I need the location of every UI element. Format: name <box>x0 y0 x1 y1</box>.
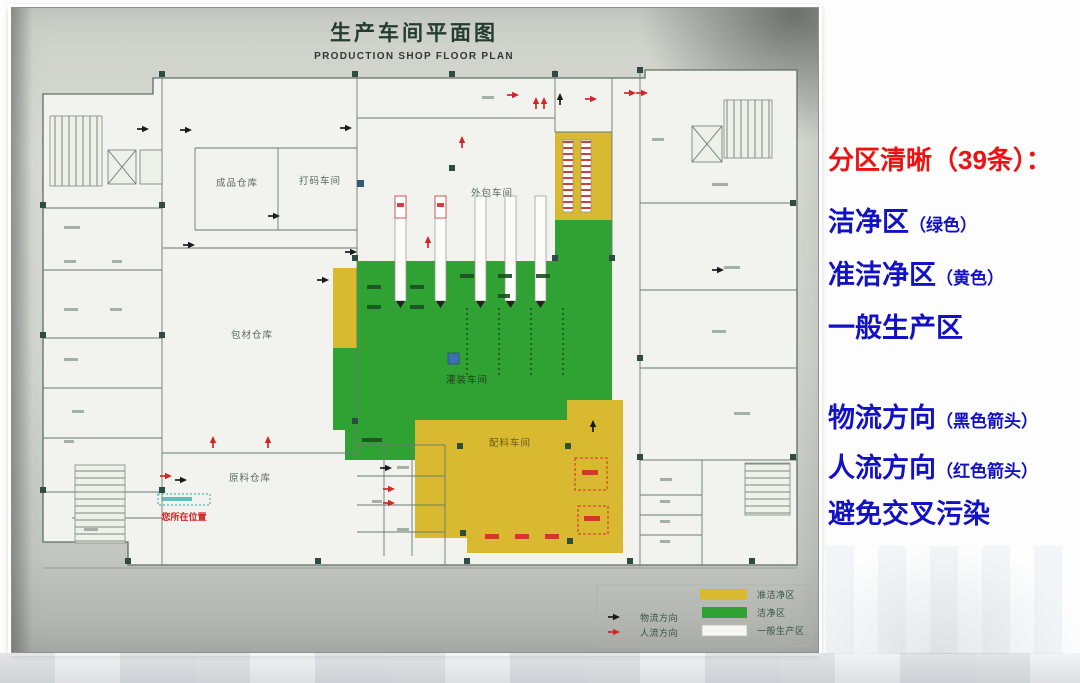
room-filling: 灌装车间 <box>446 374 488 386</box>
slide: 生产车间平面图 PRODUCTION SHOP FLOOR PLAN <box>0 0 1080 683</box>
room-coding: 打码车间 <box>299 175 341 187</box>
plan-legend: 物流方向 人流方向 准洁净区 洁净区 一般生产区 <box>597 585 811 646</box>
legend-swatch-general <box>702 625 747 636</box>
legend-swatch-clean <box>702 607 747 618</box>
legend-material-arrow <box>608 614 620 620</box>
plan-title: 生产车间平面图 <box>330 21 498 45</box>
floor-plan-drawing: 生产车间平面图 PRODUCTION SHOP FLOOR PLAN <box>12 8 818 652</box>
watermark-buildings-right <box>826 546 1080 654</box>
legend-clean: 洁净区 <box>757 607 786 618</box>
legend-general: 一般生产区 <box>757 625 805 636</box>
room-packing-material: 包材仓库 <box>231 329 273 341</box>
stairs-top-left <box>50 116 102 186</box>
room-finished-goods: 成品仓库 <box>216 177 258 189</box>
note-material-flow: 物流方向（黑色箭头） <box>828 396 1038 435</box>
plan-subtitle: PRODUCTION SHOP FLOOR PLAN <box>314 51 514 62</box>
legend-swatch-semi-clean <box>700 589 747 600</box>
note-avoid-cross-contamination: 避免交叉污染 <box>828 492 990 531</box>
room-batching: 配料车间 <box>489 437 531 449</box>
marker-label: 您所在位置 <box>161 511 206 522</box>
stairs-bottom-left <box>75 465 125 543</box>
heading-partition: 分区清晰（39条）： <box>828 140 1052 177</box>
room-raw-material: 原料仓库 <box>229 472 271 484</box>
stairs-bottom-right <box>745 463 790 515</box>
note-clean-zone: 洁净区（绿色） <box>828 200 977 239</box>
watermark-buildings-bottom <box>0 653 1080 683</box>
floor-plan-photo: 生产车间平面图 PRODUCTION SHOP FLOOR PLAN <box>11 7 819 653</box>
room-outer-packing: 外包车间 <box>471 187 513 199</box>
stairs-top-right <box>724 100 772 158</box>
note-semi-clean-zone: 准洁净区（黄色） <box>828 253 1004 292</box>
equipment-square <box>448 353 459 364</box>
note-people-flow: 人流方向（红色箭头） <box>828 446 1038 485</box>
legend-people-arrow <box>608 629 620 635</box>
legend-material-flow: 物流方向 <box>640 612 678 623</box>
legend-semi-clean: 准洁净区 <box>757 589 795 600</box>
note-general-zone: 一般生产区 <box>828 306 963 345</box>
legend-people-flow: 人流方向 <box>640 627 678 638</box>
